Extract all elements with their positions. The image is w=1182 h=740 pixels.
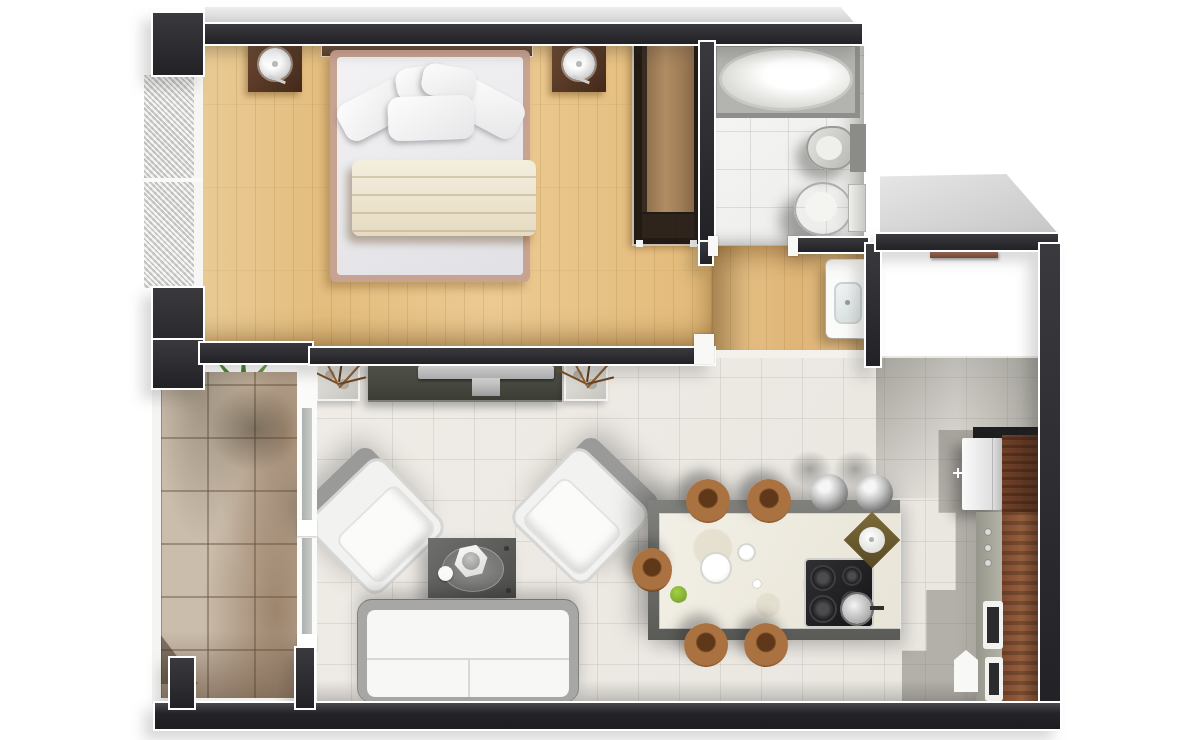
wall-living-top-right [876,234,1058,250]
divider-mullion [297,520,317,536]
bathroom-door-jamb [788,236,798,256]
folded-blanket [352,160,536,236]
plate-tiny [752,579,762,589]
glass-pane [302,538,312,634]
wall-shelf [930,251,998,258]
steel-sphere-stool [855,474,893,512]
bar-stool [747,479,791,523]
hall-threshold [714,350,868,358]
bathtub [719,47,853,111]
worktop-knob [984,559,992,567]
floor-plan-canvas [0,0,1182,740]
balcony-left-rail [152,372,161,704]
balcony-glass-divider [297,366,317,702]
small-jug [438,566,453,581]
fridge [962,438,1002,510]
twig-planter [316,360,360,401]
wall-right [1040,244,1060,714]
steel-pot [842,594,872,624]
built-in-oven [985,657,1003,701]
wardrobe-base [642,214,694,238]
worktop-knob [984,528,992,536]
plate-large [700,552,732,584]
entry-landing-slab [880,174,1058,236]
plant-shadow [209,386,299,472]
burner [809,595,837,623]
fridge-handle-icon [953,468,963,478]
burner [810,565,836,591]
bidet [806,124,866,174]
bar-stool [686,479,730,523]
tall-walnut-cabinet [1002,435,1042,512]
coffee-table [428,538,516,598]
walnut-counter [1002,512,1042,705]
burner [842,566,862,586]
tv-console [368,360,562,402]
sofa-cushions [367,610,569,697]
wardrobe-foot [636,240,643,247]
bar-stool [684,623,728,667]
worktop-knob [984,544,992,552]
pillow [387,95,474,142]
bathroom-door-jamb [708,236,718,256]
washbasin-vanity [826,260,870,338]
built-in-oven [983,601,1003,649]
wardrobe-foot [690,240,697,247]
wardrobe [634,40,700,244]
bidet-bowl [806,126,854,170]
twig-planter [564,360,608,401]
table-knob [504,546,509,551]
nightstand-left [248,42,302,92]
greens-on-island [670,586,687,603]
table-knob [506,588,511,593]
bar-stool [632,548,672,592]
nightstand-right [552,42,606,92]
bedroom-door-jamb [694,334,714,364]
cooktop [806,560,872,626]
plate-small [737,543,756,562]
divider-mullion [297,634,317,650]
washbasin-drain [845,300,850,305]
bowl-on-board [859,527,885,553]
bidet-tank [850,124,866,172]
balcony-bottom-sill [161,698,297,706]
table-lamp [563,48,595,80]
bar-stool [744,623,788,667]
wardrobe-shelf [642,46,694,212]
table-lamp [259,48,291,80]
window-mullion [142,178,203,182]
glass-pane [302,408,312,520]
toilet-bowl [794,182,852,236]
toilet-tank [848,184,866,232]
toilet [792,178,868,240]
sofa [358,600,578,702]
wall-bottom [155,703,1060,729]
tv-stand [472,378,500,396]
top-wall-cap-slab [205,7,857,26]
